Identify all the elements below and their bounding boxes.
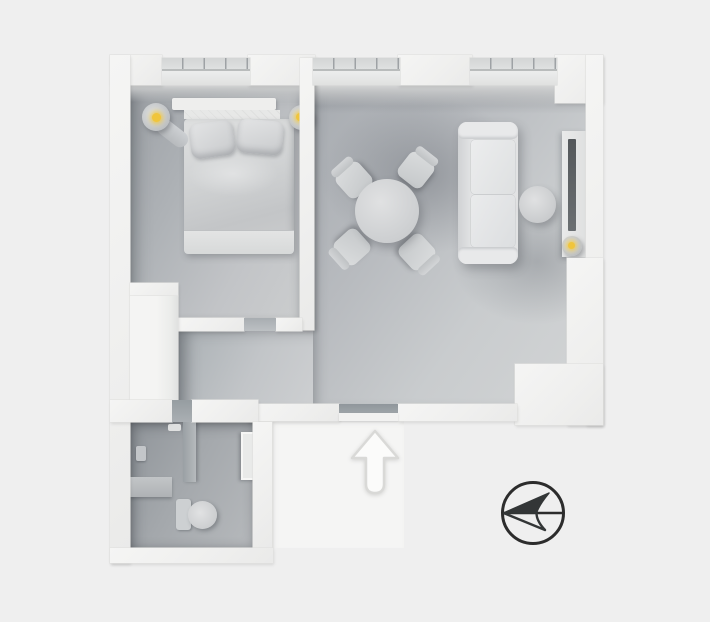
shower-head: [168, 424, 181, 431]
living-window-2: [470, 58, 557, 85]
wall-bottom-left-of-entry: [247, 404, 339, 421]
hallway-floor: [178, 330, 313, 406]
wall-bathroom-bottom: [110, 548, 273, 563]
compass-icon[interactable]: [496, 476, 570, 550]
wall-bathroom-top-a: [110, 400, 172, 422]
shower-partition: [183, 422, 196, 482]
living-window-sill-band: [313, 85, 586, 106]
bed-mattress-top: [184, 110, 280, 119]
sofa-arm-top: [458, 122, 518, 139]
bed-duvet-highlight: [188, 150, 288, 210]
bed-sheet-fold: [184, 230, 294, 254]
living-window-1: [313, 58, 400, 85]
sofa-cushion-bottom: [471, 195, 515, 247]
sofa-cushion-top: [471, 140, 515, 194]
wall-bedroom-south-b: [276, 318, 302, 331]
wall-bathroom-top-b: [192, 400, 258, 422]
bedroom-door-opening: [244, 318, 276, 331]
sofa-arm-bottom: [458, 247, 518, 264]
window-glass: [313, 58, 400, 69]
wall-bedroom-living-divider: [300, 58, 314, 330]
pillow-left: [188, 119, 236, 159]
console-lamp-glow: [568, 242, 575, 249]
window-sill: [470, 71, 557, 85]
window-glass: [162, 58, 250, 69]
side-table: [519, 186, 556, 223]
shower-bench: [130, 477, 172, 497]
bathroom-door-opening: [172, 400, 192, 422]
toilet-bowl: [188, 501, 217, 529]
window-sill: [162, 71, 250, 85]
wall-bedroom-sw-nook: [130, 283, 178, 296]
wall-bathroom-right: [253, 422, 272, 548]
shower-controls: [136, 446, 146, 461]
bedroom-window: [162, 58, 250, 85]
wall-left: [110, 55, 130, 563]
bedside-lamp-left-glow: [152, 113, 161, 122]
window-sill: [313, 71, 400, 85]
wall-top-c: [398, 55, 472, 85]
window-glass: [470, 58, 557, 69]
bed-headboard: [172, 98, 276, 110]
pillow-right: [236, 118, 285, 156]
wall-bottom-right-of-entry: [398, 404, 517, 421]
floorplan-canvas: [0, 0, 710, 622]
tv: [568, 139, 576, 231]
closet-block: [130, 296, 178, 406]
entrance-arrow-icon: [346, 426, 404, 502]
wall-bedroom-south-a: [178, 318, 244, 331]
dining-table: [355, 179, 419, 243]
wall-bottom-right-block: [515, 364, 603, 425]
sofa-back: [458, 122, 471, 264]
entrance-sill: [339, 413, 398, 421]
